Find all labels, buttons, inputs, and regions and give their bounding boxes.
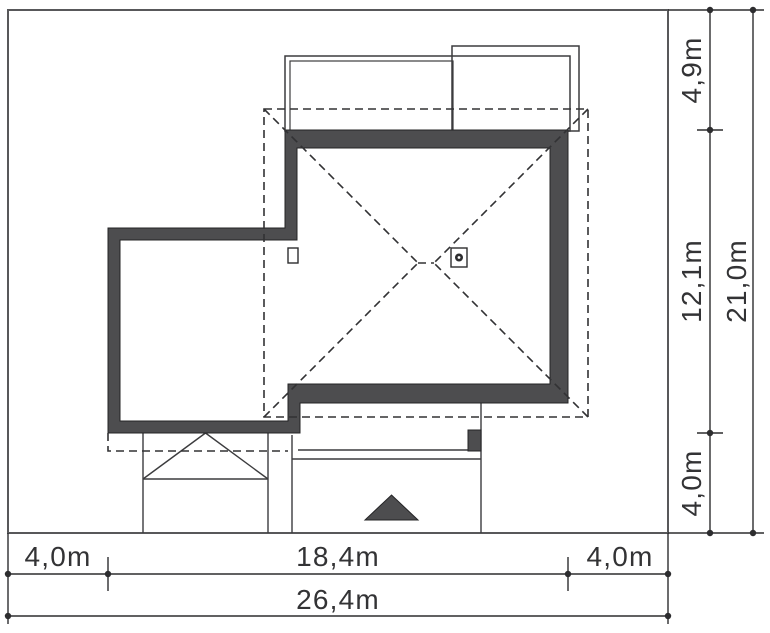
dim-label-right-back: 4,9m xyxy=(676,36,707,103)
wall-vent-symbol xyxy=(288,248,298,263)
chimney-flue-hole xyxy=(458,256,461,259)
dim-label-bottom-house: 18,4m xyxy=(296,541,380,572)
dim-label-bottom-total: 26,4m xyxy=(296,584,380,615)
dim-label-bottom-right: 4,0m xyxy=(586,541,653,572)
chimney-symbol xyxy=(451,248,467,267)
site-plan-page: 4,9m 12,1m 4,0m 21,0m 4,0m 18,4m 4,0m 26… xyxy=(0,0,770,633)
chimney-dark-symbol xyxy=(468,430,481,451)
dimensions-bottom: 4,0m 18,4m 4,0m 26,4m xyxy=(5,533,671,624)
north-terrace-right xyxy=(452,46,579,131)
dim-label-bottom-left: 4,0m xyxy=(24,541,91,572)
site-plan-drawing: 4,9m 12,1m 4,0m 21,0m 4,0m 18,4m 4,0m 26… xyxy=(0,0,770,633)
dim-label-right-total: 21,0m xyxy=(721,239,752,323)
dim-label-right-front: 4,0m xyxy=(676,449,707,516)
dim-label-right-house: 12,1m xyxy=(676,239,707,323)
dimensions-right: 4,9m 12,1m 4,0m 21,0m xyxy=(668,7,764,536)
